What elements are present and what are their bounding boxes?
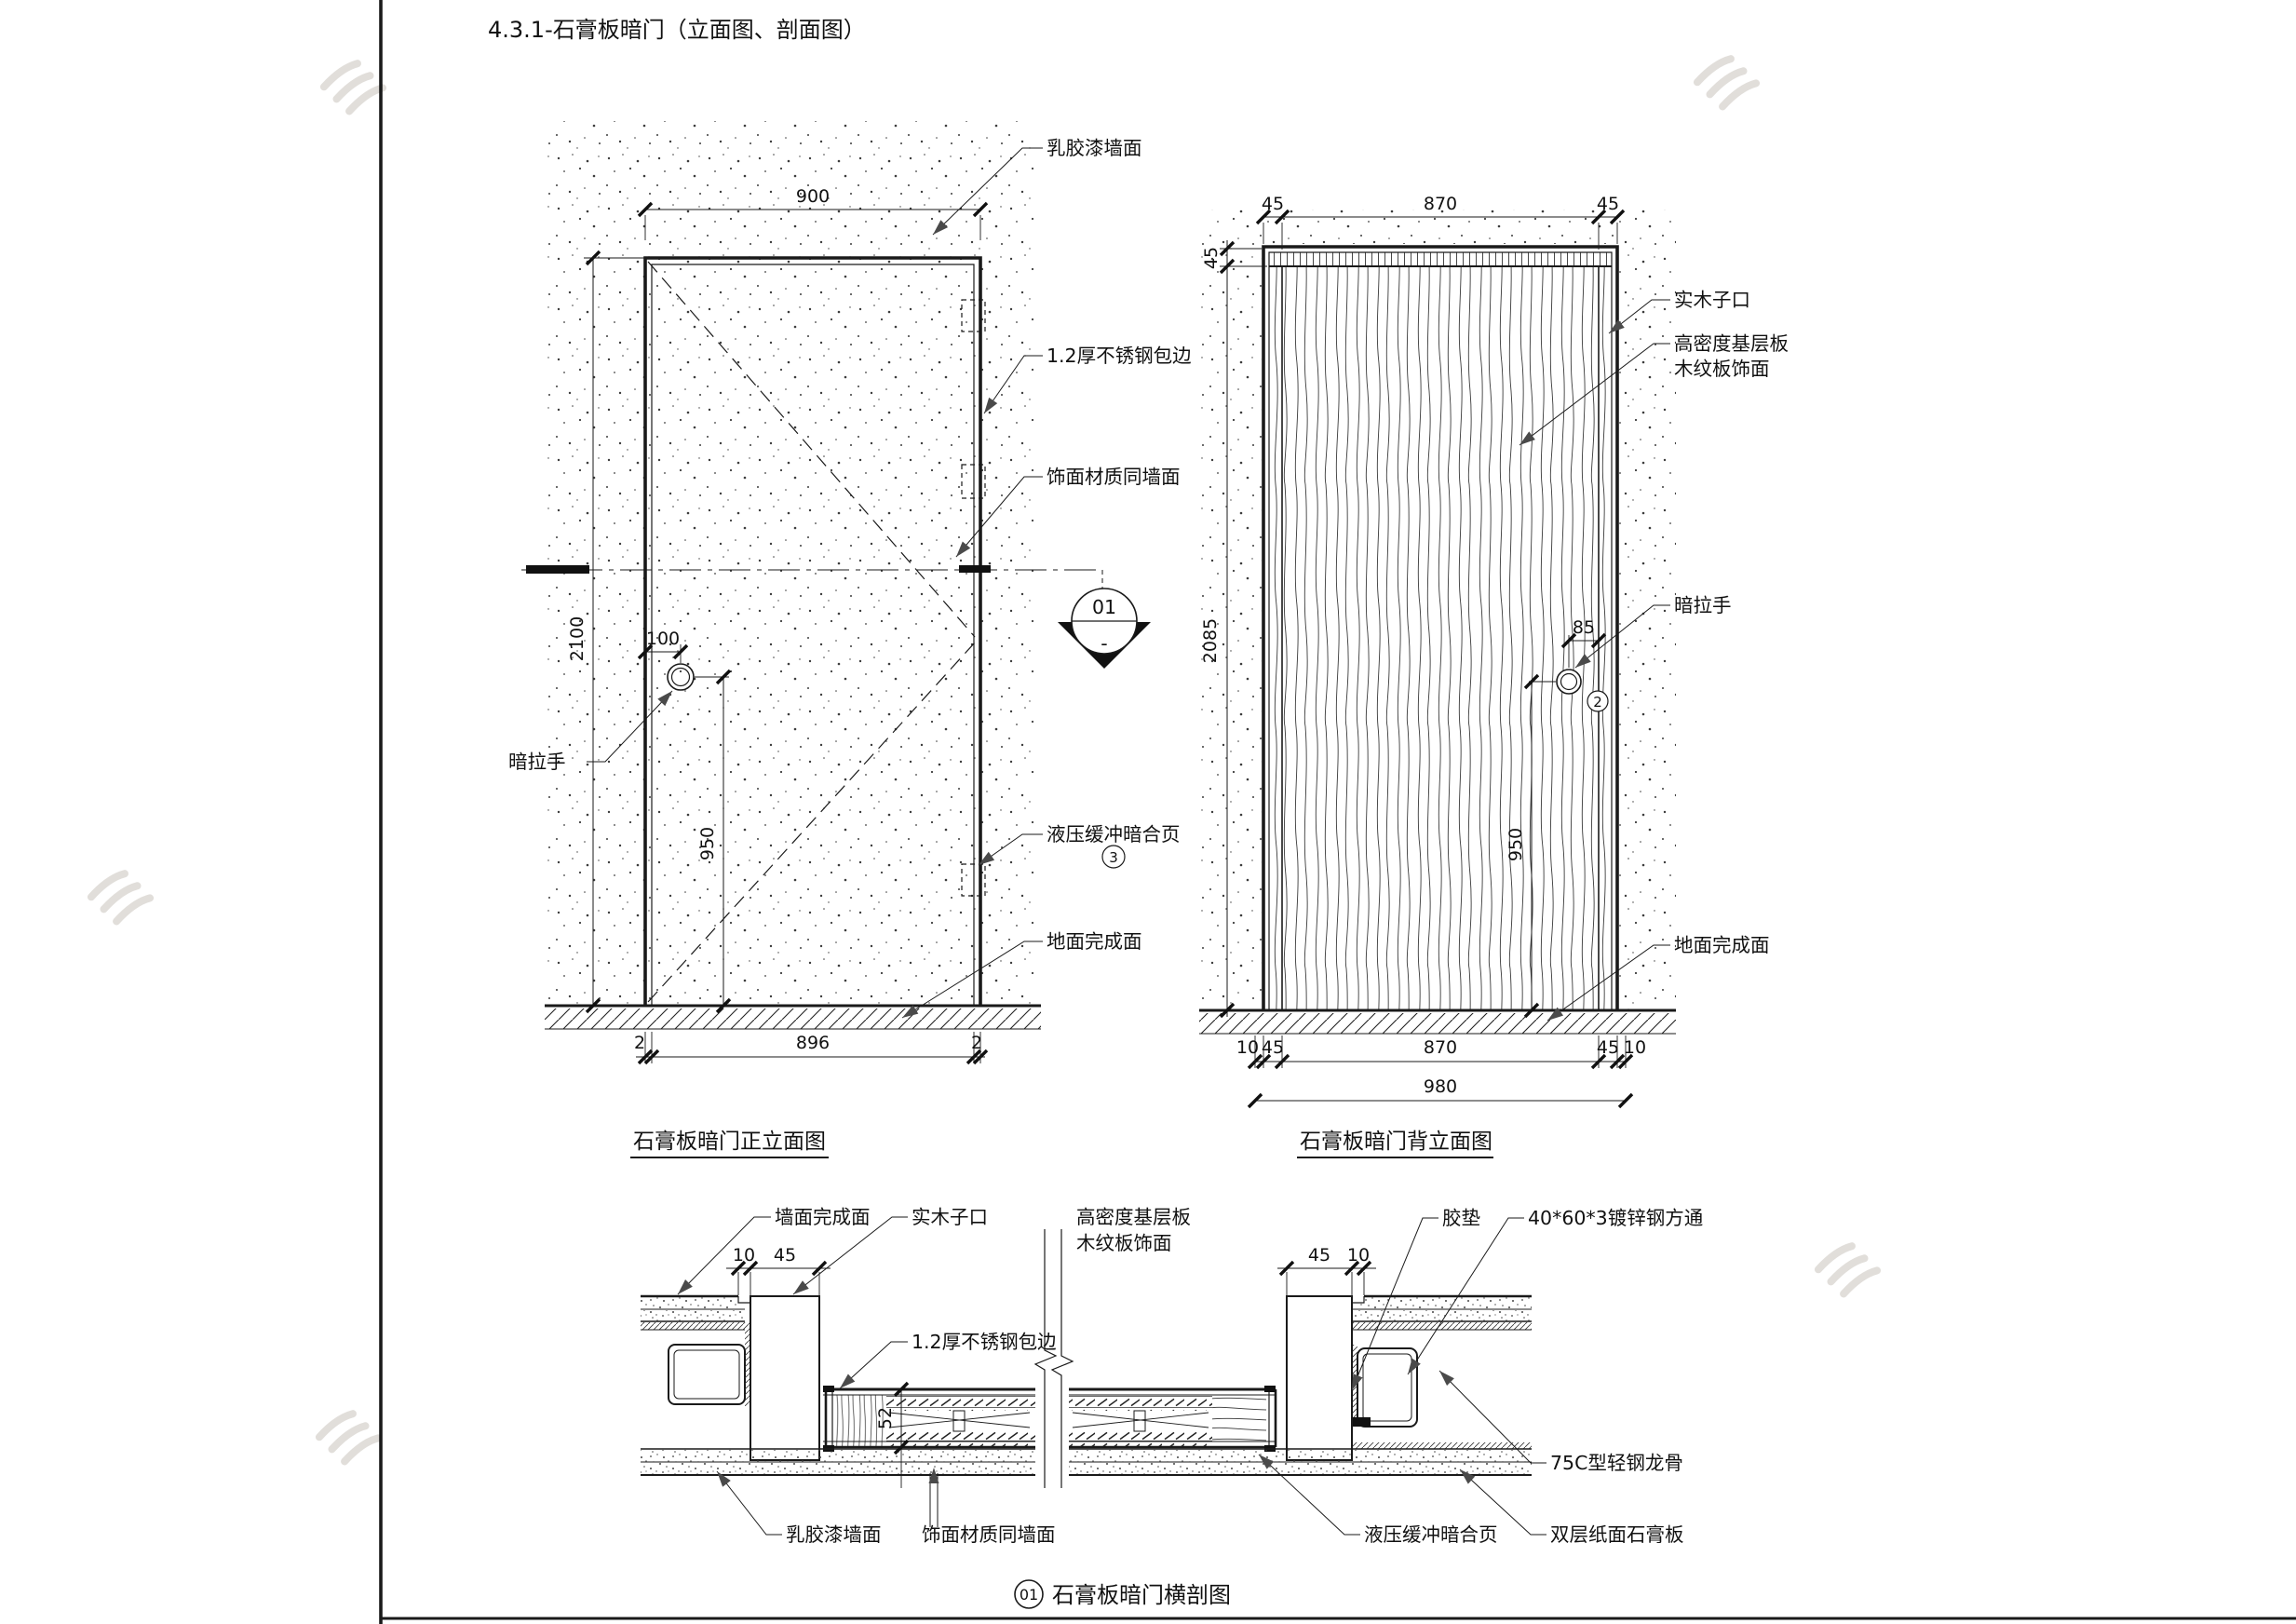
floor	[545, 1006, 1041, 1029]
leaf-wood-end-right	[1212, 1395, 1266, 1447]
handle-number-bubble: 2	[1587, 691, 1608, 711]
dim-back-handle-y-text: 950	[1506, 828, 1526, 861]
section-marker-sheet: -	[1101, 632, 1107, 655]
left-wall	[641, 1296, 750, 1406]
leader-face-same	[929, 1468, 939, 1527]
label-stainless-steel-edge: 1.2厚不锈钢包边	[1047, 345, 1192, 367]
leader-wall-finish	[674, 1217, 771, 1298]
dim-front-handle-y-text: 950	[697, 827, 718, 860]
jamb-left-woodgrain	[1269, 266, 1282, 1010]
floor	[1199, 1010, 1676, 1034]
section-marker: 01 -	[1058, 589, 1151, 669]
handle-number: 2	[1593, 694, 1602, 710]
hinge-plate	[1352, 1417, 1371, 1427]
front-elevation-view: 01 - 3 乳胶漆墙面 1.2厚不锈钢包边 饰面材质同墙面 液压缓冲暗合页 地…	[508, 121, 1192, 1157]
steel-tube-profile	[1357, 1348, 1417, 1427]
dim-front-bottom-text: 896	[796, 1033, 830, 1053]
back-elevation-view: 2 实木子口 高密度基层板 木纹板饰面 暗拉手 地面完成面 石膏板暗门背立面图 …	[1199, 194, 1789, 1157]
label-finish-same-as-wall: 饰面材质同墙面	[1047, 466, 1181, 488]
label-hd-base-board: 高密度基层板	[1076, 1206, 1191, 1228]
label-steel-tube: 40*60*3镀锌钢方通	[1528, 1207, 1703, 1229]
dim-back-height-text: 45	[1201, 247, 1222, 269]
label-hd-base-board: 高密度基层板	[1674, 332, 1789, 355]
section-marker-number: 01	[1092, 596, 1116, 618]
label-latex-paint-wall: 乳胶漆墙面	[1047, 137, 1142, 159]
dim-front-bottom-text: 2	[971, 1033, 982, 1053]
door-leaf-woodgrain	[1282, 266, 1599, 1010]
left-jamb-block	[750, 1296, 819, 1460]
dim-back-bottom-1-text: 10	[1236, 1037, 1259, 1058]
section-title: 01 石膏板暗门横剖图	[1015, 1580, 1231, 1608]
label-double-gypsum-board: 双层纸面石膏板	[1550, 1523, 1684, 1546]
dim-section-right-text: 10	[1347, 1245, 1370, 1265]
hinge-number: 3	[1109, 849, 1118, 866]
dim-back-bottom-1-text: 10	[1624, 1037, 1646, 1058]
dim-back-top-text: 870	[1424, 194, 1457, 214]
label-hydraulic-hinge: 液压缓冲暗合页	[1364, 1523, 1498, 1546]
dim-section-left: 1045	[726, 1245, 831, 1295]
leader-paint	[713, 1468, 782, 1535]
label-wall-finish-face: 墙面完成面	[775, 1206, 871, 1228]
label-hidden-handle: 暗拉手	[508, 751, 566, 773]
dim-back-bottom-1-text: 45	[1262, 1037, 1284, 1058]
label-wood-rabbet: 实木子口	[1674, 289, 1750, 311]
dim-front-bottom-text: 2	[634, 1033, 645, 1053]
dim-back-top-text: 45	[1262, 194, 1284, 214]
label-rubber-pad: 胶垫	[1442, 1207, 1480, 1229]
dim-back-bottom-1: 10458704510	[1236, 1035, 1646, 1068]
dim-front-width-text: 900	[796, 186, 830, 207]
dim-back-height-text: 2085	[1200, 618, 1221, 663]
label-steel-stud: 75C型轻钢龙骨	[1550, 1452, 1683, 1474]
label-latex-paint-wall: 乳胶漆墙面	[786, 1523, 882, 1546]
page-title: 4.3.1-石膏板暗门（立面图、剖面图）	[488, 17, 866, 43]
dim-back-top-text: 45	[1597, 194, 1619, 214]
dim-front-height-text: 2100	[567, 616, 588, 661]
dim-back-handle-x-text: 85	[1573, 617, 1595, 638]
dim-front-bottom: 28962	[634, 1032, 987, 1063]
leader-steel-edge	[836, 1342, 908, 1392]
dim-back-bottom-1-text: 45	[1597, 1037, 1619, 1058]
dim-front-handle-x-text: 100	[646, 629, 680, 649]
view-title-section: 石膏板暗门横剖图	[1052, 1582, 1231, 1608]
label-wood-rabbet: 实木子口	[912, 1206, 988, 1228]
view-title-back: 石膏板暗门背立面图	[1300, 1130, 1492, 1154]
section-view: 墙面完成面 实木子口 高密度基层板 木纹板饰面 1.2厚不锈钢包边 胶垫 40*…	[641, 1206, 1703, 1608]
label-floor-finish: 地面完成面	[1047, 930, 1142, 953]
view-title-front: 石膏板暗门正立面图	[633, 1130, 826, 1154]
drawing-canvas: 4.3.1-石膏板暗门（立面图、剖面图）	[0, 0, 2296, 1624]
dim-leaf-thickness-text: 52	[875, 1407, 896, 1429]
label-hydraulic-hinge: 液压缓冲暗合页	[1047, 823, 1181, 846]
label-floor-finish: 地面完成面	[1674, 934, 1770, 956]
label-finish-same-as-wall: 饰面材质同墙面	[922, 1523, 1056, 1546]
leader-rabbet	[790, 1217, 908, 1298]
break-lines	[1035, 1229, 1073, 1492]
label-stainless-steel-edge: 1.2厚不锈钢包边	[912, 1331, 1057, 1353]
dim-back-overall: 980	[1249, 1076, 1632, 1107]
outer-skin-gypsum	[641, 1449, 1532, 1475]
dim-section-left-text: 45	[774, 1245, 796, 1265]
label-woodgrain-finish: 木纹板饰面	[1674, 358, 1770, 380]
label-hidden-handle: 暗拉手	[1674, 594, 1732, 616]
dim-back-overall-text: 980	[1424, 1076, 1457, 1097]
hinge-number-bubble: 3	[1102, 846, 1125, 868]
right-jamb-block	[1287, 1296, 1352, 1460]
c-stud-profile	[669, 1345, 745, 1404]
dim-section-right: 4510	[1277, 1245, 1376, 1295]
lintel-hatch	[1269, 252, 1612, 266]
dim-section-right-text: 45	[1308, 1245, 1330, 1265]
section-title-number: 01	[1020, 1586, 1038, 1604]
label-woodgrain-finish: 木纹板饰面	[1076, 1232, 1172, 1254]
dim-back-bottom-1-text: 870	[1424, 1037, 1457, 1058]
dim-section-left-text: 10	[733, 1245, 755, 1265]
drawing-sheet: 4.3.1-石膏板暗门（立面图、剖面图）	[0, 0, 2296, 1624]
